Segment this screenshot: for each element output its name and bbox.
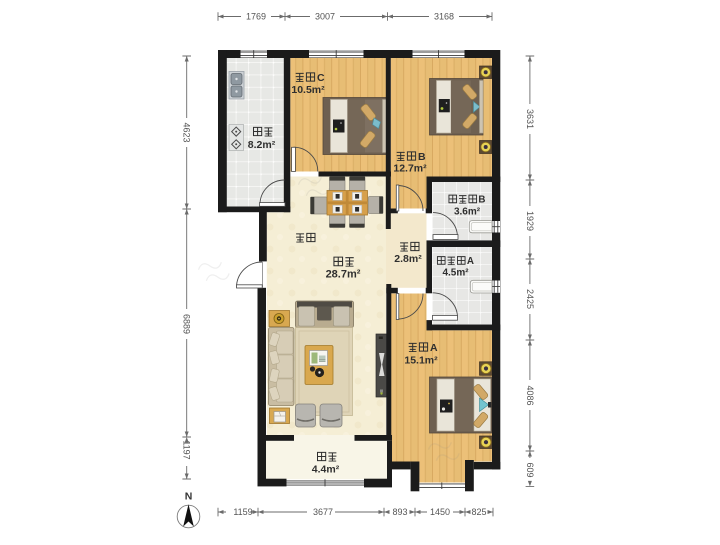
svg-text:4.4m²: 4.4m² <box>312 463 340 475</box>
svg-text:1769: 1769 <box>246 12 266 22</box>
svg-text:1159: 1159 <box>233 507 252 517</box>
svg-text:B: B <box>418 151 426 163</box>
svg-text:1450: 1450 <box>430 507 450 517</box>
svg-text:3007: 3007 <box>315 12 335 22</box>
svg-text:3168: 3168 <box>434 12 454 22</box>
svg-text:3677: 3677 <box>313 507 333 517</box>
svg-text:825: 825 <box>471 507 486 517</box>
svg-text:2.8m²: 2.8m² <box>394 253 422 265</box>
svg-text:6889: 6889 <box>182 314 192 334</box>
svg-text:12.7m²: 12.7m² <box>393 162 427 174</box>
svg-text:2425: 2425 <box>525 289 535 309</box>
svg-text:3631: 3631 <box>525 109 535 129</box>
svg-text:A: A <box>467 256 474 267</box>
svg-text:4.5m²: 4.5m² <box>442 268 469 279</box>
svg-text:4086: 4086 <box>525 385 535 405</box>
svg-text:A: A <box>430 342 438 354</box>
svg-text:C: C <box>317 72 325 84</box>
svg-text:8.2m²: 8.2m² <box>248 139 276 151</box>
svg-text:15.1m²: 15.1m² <box>404 354 438 366</box>
svg-text:4623: 4623 <box>182 122 192 142</box>
svg-text:3.6m²: 3.6m² <box>454 207 481 218</box>
svg-text:N: N <box>185 491 193 503</box>
svg-text:609: 609 <box>525 462 535 477</box>
svg-text:B: B <box>478 195 485 206</box>
svg-text:1929: 1929 <box>525 211 535 231</box>
svg-text:28.7m²: 28.7m² <box>326 268 361 280</box>
svg-text:893: 893 <box>392 507 407 517</box>
svg-text:10.5m²: 10.5m² <box>291 84 325 96</box>
svg-text:1197: 1197 <box>182 440 192 459</box>
